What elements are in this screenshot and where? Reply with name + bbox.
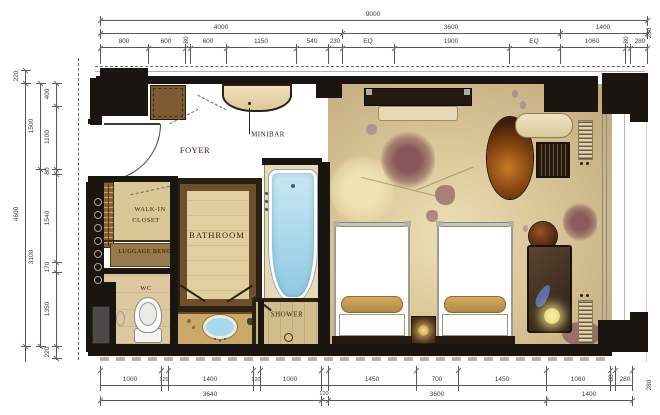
dim-label: 170 [45, 262, 52, 273]
floor-lamp [544, 308, 560, 324]
wall-stub-foyer-bedroom [316, 84, 342, 98]
slatted-chair [536, 142, 570, 178]
dim-label: 1400 [596, 25, 610, 32]
sink-faucet-dot [224, 338, 226, 340]
dim-label: 4000 [214, 25, 228, 32]
dim-label: 1540 [45, 211, 52, 225]
wall-bottom [88, 344, 612, 356]
tub-valve [265, 200, 268, 203]
wc-label: WC [140, 286, 151, 293]
centerline-left [78, 58, 79, 360]
bed-1-foot-rail [337, 222, 407, 227]
curtain-tieback [580, 294, 583, 297]
tub-valve [265, 208, 268, 211]
dim-label: 280 [635, 39, 646, 46]
nightstand-lamp [418, 325, 429, 336]
hall-cabinet [150, 85, 186, 120]
dim-label: 1500 [29, 119, 36, 133]
dim-label: 600 [203, 39, 214, 46]
dim-label: 1150 [254, 39, 268, 46]
wall-tub-bedroom [318, 162, 330, 344]
bed-1-post [405, 221, 411, 227]
dim-label: 4600 [14, 207, 21, 221]
bed-1-bolster [341, 296, 403, 313]
console-bench [515, 113, 573, 138]
dim-label: 3100 [29, 250, 36, 264]
column-bottom-right-notch [630, 312, 648, 320]
dim-left-detail-line [56, 83, 57, 360]
plumbing-ring [94, 198, 102, 206]
plumbing-ring [94, 263, 102, 271]
dim-top-detail-line [100, 47, 647, 48]
foyer-label: FOYER [180, 146, 210, 155]
bathroom-label: BATHROOM [189, 231, 245, 240]
bed-2-post [436, 221, 442, 227]
plumbing-ring [94, 237, 102, 245]
dim-label: 80 [624, 36, 631, 43]
toilet-seat [139, 302, 157, 326]
dim-label: 1100 [45, 130, 52, 144]
bed-2-bolster [444, 296, 506, 313]
wall-top [96, 76, 546, 84]
bathroom-room [174, 178, 262, 312]
carpet-flower-mauve [381, 130, 435, 190]
desk-bracket [464, 89, 470, 95]
carpet-petal [520, 101, 526, 109]
luggage-bench [110, 243, 176, 267]
dim-label: 80 [184, 36, 191, 43]
dim-label: 1060 [571, 377, 585, 384]
dim-label: 9000 [366, 12, 380, 19]
dim-label: 230 [330, 39, 341, 46]
curtain-tieback [586, 294, 589, 297]
bed-2-post [508, 221, 514, 227]
window-glazing-line [606, 112, 607, 324]
shower-drain [284, 333, 293, 342]
dim-label: 1450 [365, 377, 379, 384]
tub-valve [265, 192, 268, 195]
closet-rod [108, 184, 109, 246]
minibar-label: MINIBAR [251, 132, 285, 139]
bed-1-post [333, 221, 339, 227]
vanity-accessory [192, 326, 195, 329]
sink-faucet-dot [219, 340, 221, 342]
minibar-knob [248, 102, 251, 105]
dim-label: 220 [45, 347, 52, 358]
walkin-closet-label-line1: WALK-IN [134, 207, 165, 214]
dim-label: 3640 [203, 392, 217, 399]
desk [364, 88, 472, 106]
walkin-closet-label-line2: CLOSET [132, 218, 160, 225]
dim-label: 120 [251, 378, 260, 384]
wall-left-upper [90, 78, 102, 125]
dim-label: 1000 [283, 377, 297, 384]
curtain-bottom [578, 300, 593, 344]
dim-label: 1350 [45, 302, 52, 316]
dim-label: 120 [159, 378, 168, 384]
column-top-right-notch [630, 114, 648, 122]
dim-label: 280 [647, 28, 654, 39]
window-glazing-line [602, 112, 603, 324]
wall-mid-vertical [170, 176, 178, 352]
curtain-tieback [580, 162, 583, 165]
service-panel-inset [92, 306, 110, 344]
dim-label: EQ [529, 39, 538, 46]
desk-bench [378, 106, 458, 121]
dim-label: 280 [620, 377, 631, 384]
dim-label: 800 [119, 39, 130, 46]
dim-top-overall-line [100, 20, 647, 21]
column-bottom-right [598, 320, 648, 352]
sink-faucet-dot [214, 338, 216, 340]
bed-1-bench [339, 314, 405, 336]
luggage-bench-label: LUGGAGE BENCH [118, 249, 175, 255]
curtain-top [578, 120, 593, 160]
dim-label: EQ [363, 39, 372, 46]
plumbing-ring [94, 276, 102, 284]
floor-plan-drawing: FOYER MINIBAR WALK-IN CLOSET BATHROOM LU… [0, 0, 660, 415]
dim-label: 80 [609, 374, 616, 381]
bathtub [269, 170, 317, 300]
dim-label: 1900 [444, 39, 458, 46]
door-jamb [88, 119, 102, 124]
dim-label: 700 [432, 377, 443, 384]
dim-label: 1450 [495, 377, 509, 384]
dim-top-major-line [100, 33, 647, 34]
shower-label: SHOWER [271, 312, 304, 319]
column-top-left-shaft [100, 68, 148, 116]
dim-bottom-detail-line [100, 385, 632, 386]
curtain-tieback [586, 162, 589, 165]
dim-label: 1400 [582, 392, 596, 399]
dim-label: 1060 [585, 39, 599, 46]
towel-ring [116, 311, 125, 326]
vanity-sink [203, 315, 237, 339]
carpet-petal [512, 90, 518, 98]
minibar-leader-line [249, 108, 250, 134]
tub-faucet [291, 184, 295, 188]
dim-label: 1400 [203, 377, 217, 384]
dim-label: 280 [647, 380, 654, 391]
wall-closet-bottom [104, 240, 176, 242]
carpet-flower-small [366, 124, 377, 135]
vanity-accessory [187, 319, 191, 323]
dim-left-outer-line [25, 70, 26, 362]
dim-label: 3600 [444, 25, 458, 32]
dim-bottom-major-line [100, 400, 632, 401]
plumbing-ring [94, 250, 102, 258]
dim-label: 120 [319, 392, 328, 398]
dim-label: 540 [307, 39, 318, 46]
bed-2-bench [442, 314, 508, 336]
carpet-flower-small [435, 185, 455, 205]
dim-label: 600 [161, 39, 172, 46]
column-top-right-a [544, 76, 598, 112]
bed-2-foot-rail [440, 222, 510, 227]
wall-shower-left [258, 300, 264, 352]
dim-left-mid-line [40, 83, 41, 348]
wall-tub-top [262, 158, 322, 165]
column-top-right-b [602, 73, 648, 114]
carpet-flower-right [563, 202, 597, 242]
dim-label: 1000 [123, 377, 137, 384]
entry-door-leaf [104, 123, 160, 125]
dim-label: 3600 [430, 392, 444, 399]
carpet-petal [523, 225, 528, 232]
dim-label: 220 [14, 71, 21, 82]
wall-closet-top [88, 176, 178, 182]
window-mullion-line [624, 112, 625, 324]
facade-line-top [95, 71, 645, 72]
dim-label: 400 [45, 89, 52, 100]
dim-label: 80 [45, 167, 52, 174]
wall-bench-bottom [104, 268, 176, 274]
centerline-top [95, 66, 645, 67]
plumbing-ring [94, 211, 102, 219]
desk-bracket [366, 89, 372, 95]
plumbing-ring [94, 224, 102, 232]
sill-dashes-bottom [100, 357, 608, 361]
